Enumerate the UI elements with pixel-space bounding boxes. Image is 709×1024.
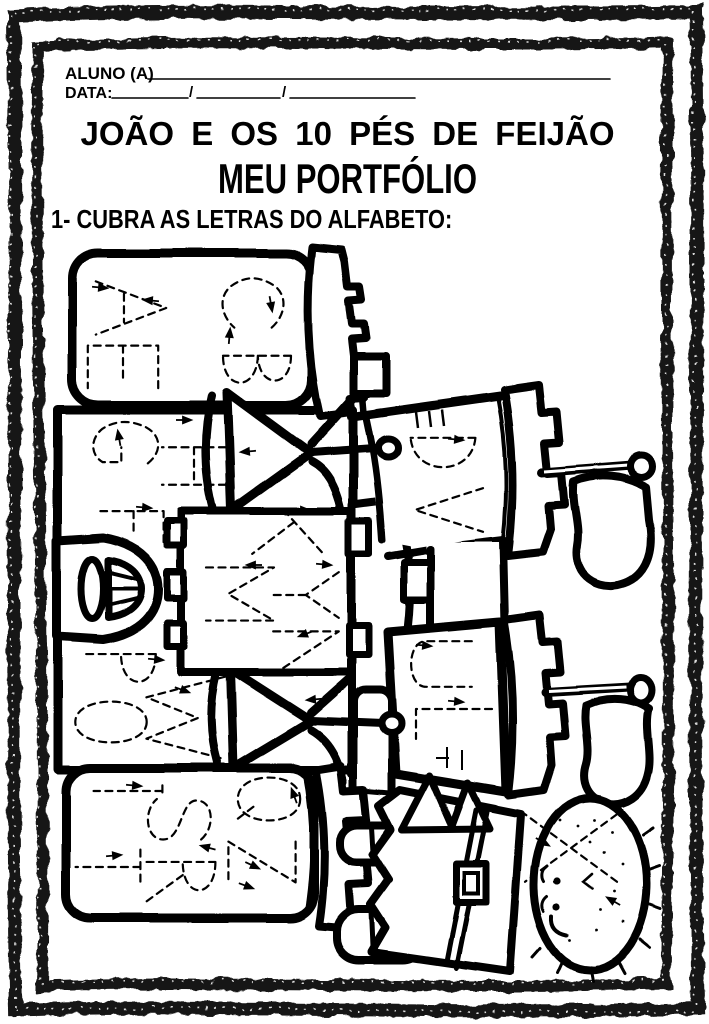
svg-text:/: / xyxy=(189,84,194,101)
svg-text:/: / xyxy=(282,84,287,101)
